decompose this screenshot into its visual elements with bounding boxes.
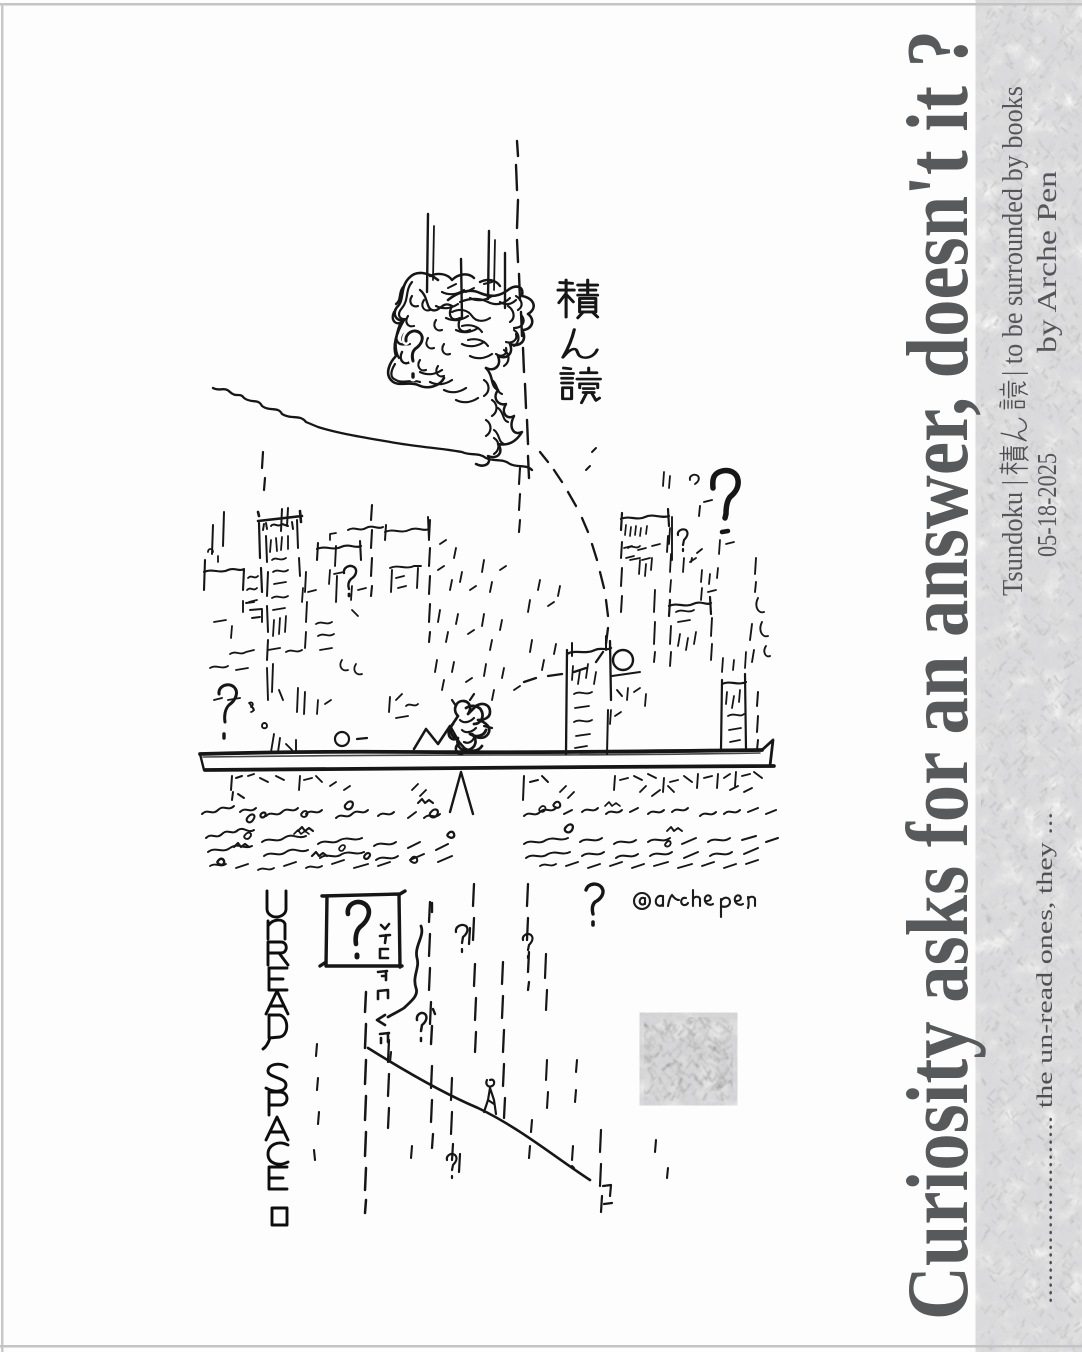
svg-text:by Arche Pen: by Arche Pen bbox=[1032, 170, 1062, 353]
svg-text:Curiosity asks for an answer,: Curiosity asks for an answer, doesn't it… bbox=[890, 30, 987, 1320]
svg-text:| to be surrounded by books: | to be surrounded by books bbox=[997, 86, 1029, 376]
svg-text:Tsundoku |: Tsundoku | bbox=[997, 480, 1029, 596]
svg-text:......................... the: ......................... the un-read on… bbox=[1032, 812, 1057, 1304]
svg-text:05-18-2025: 05-18-2025 bbox=[1032, 453, 1062, 557]
